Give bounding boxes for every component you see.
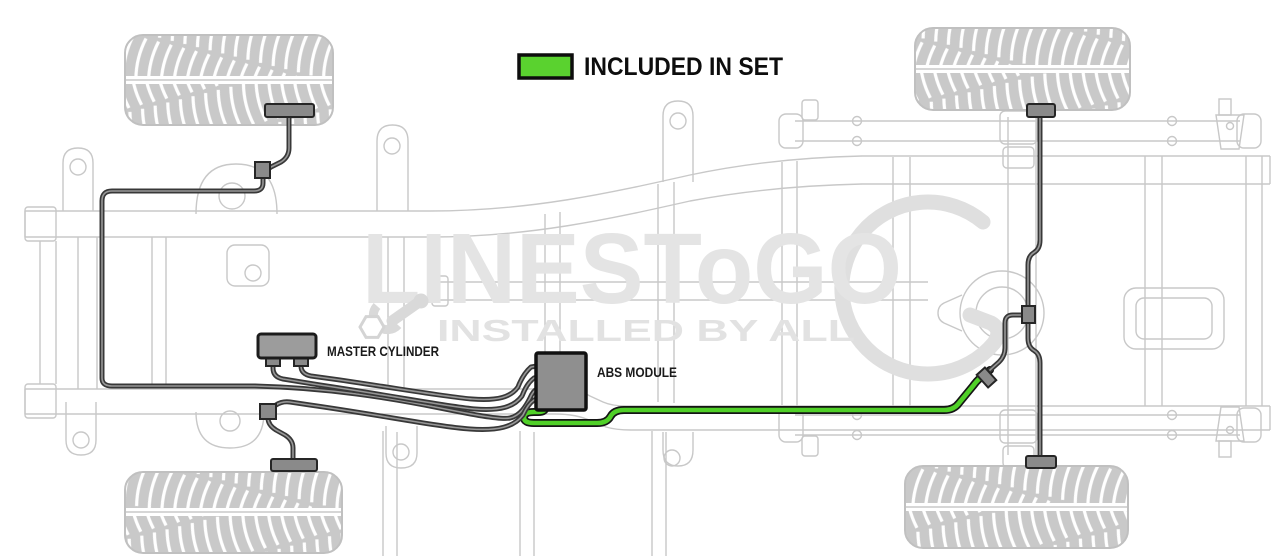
abs-module-label: ABS MODULE <box>597 364 677 380</box>
tire-front-left-bottom <box>125 472 342 553</box>
tire-rear-right-bottom <box>905 466 1128 548</box>
rear-lower-wheel-connector <box>1026 456 1056 468</box>
master-cylinder-label: MASTER CYLINDER <box>327 343 439 359</box>
front-lower-line-fitting <box>260 404 276 419</box>
rear-upper-wheel-connector <box>1027 104 1055 117</box>
watermark-tagline-text: INSTALLED BY ALL <box>437 313 855 348</box>
legend-swatch <box>519 55 572 78</box>
watermark: LINESToGO INSTALLED BY ALL <box>360 202 998 374</box>
brake-line-diagram: LINESToGO INSTALLED BY ALL <box>0 0 1280 558</box>
diagram-page: LINESToGO INSTALLED BY ALL <box>0 0 1280 558</box>
front-upper-line-fitting <box>255 162 270 178</box>
master-cylinder: MASTER CYLINDER <box>258 334 439 366</box>
watermark-brand-text: LINESToGO <box>362 213 902 325</box>
tire-rear-right-top <box>915 28 1130 110</box>
abs-module-box <box>536 353 586 410</box>
front-left-upper-wheel-connector <box>265 104 314 117</box>
abs-module: ABS MODULE <box>536 353 677 410</box>
legend-label: INCLUDED IN SET <box>584 53 783 81</box>
front-left-lower-wheel-connector <box>271 459 317 471</box>
legend: INCLUDED IN SET <box>519 53 783 81</box>
master-cylinder-box <box>258 334 316 358</box>
rear-axle-tee-fitting <box>1022 306 1035 323</box>
